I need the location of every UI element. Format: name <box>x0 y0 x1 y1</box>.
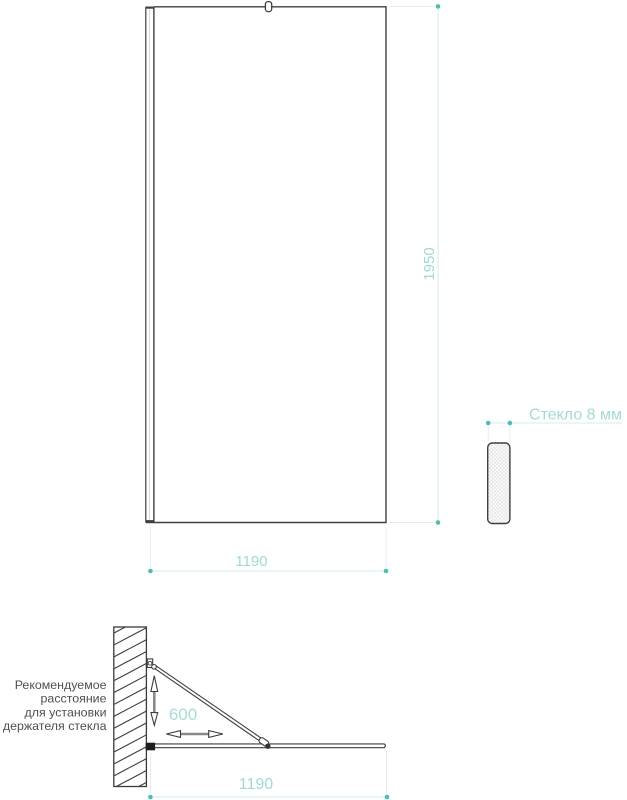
svg-text:1190: 1190 <box>239 776 274 793</box>
svg-text:расстояние: расстояние <box>41 692 107 706</box>
svg-text:1950: 1950 <box>421 247 438 280</box>
svg-text:держателя стекла: держателя стекла <box>3 719 107 733</box>
svg-text:для установки: для установки <box>25 705 107 719</box>
svg-text:Рекомендуемое: Рекомендуемое <box>15 678 107 692</box>
svg-text:Стекло 8 мм: Стекло 8 мм <box>529 407 622 424</box>
svg-text:600: 600 <box>169 705 197 724</box>
svg-text:1190: 1190 <box>235 553 267 570</box>
